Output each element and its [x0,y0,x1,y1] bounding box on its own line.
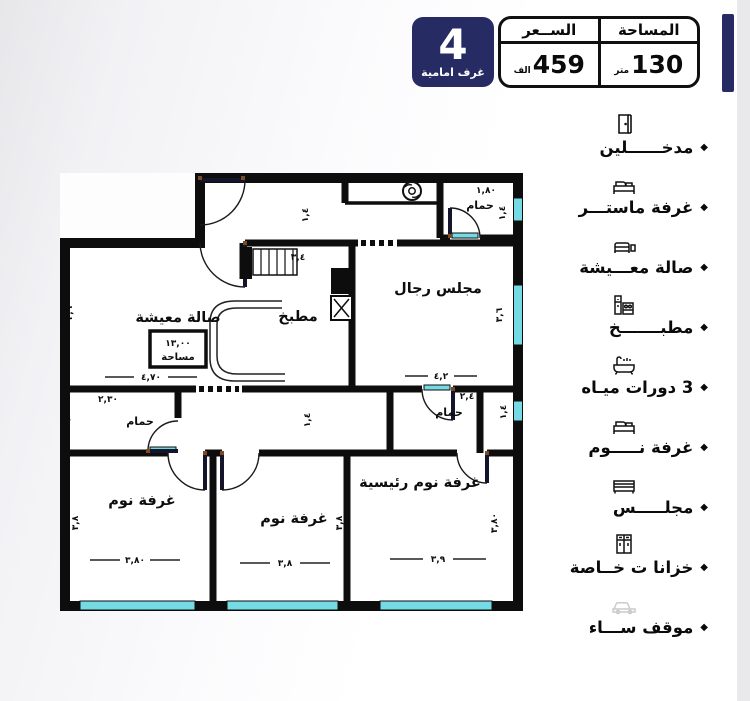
bed-icon [611,170,637,196]
room-kitchen: مطبخ [278,309,317,325]
dim-majlis-height: ٣,٦ [495,307,505,322]
dim-hall-depth: ١,٤ [303,413,313,427]
area-price-table: المساحة 130 متر الســعر 459 الف [498,16,700,88]
price-column: الســعر 459 الف [501,19,601,85]
stove-appliance [331,268,352,320]
dim-kitchen-width: ٣,٤ [291,253,305,263]
dim-entry-depth: ١,٤ [301,208,311,222]
dim-bath-top-width: ١,٨٠ [476,186,496,196]
bullet-icon: ◆ [700,503,708,513]
area-value-cell: 130 متر [601,44,698,85]
room-bedroom-1: غرفة نوم [108,493,175,509]
bed-icon [611,410,637,436]
bullet-icon: ◆ [700,443,708,453]
feature-parking: ◆موقف ســـاء [540,590,708,650]
area-value: 130 [631,50,683,79]
dim-master-width: ٣,٩ [431,555,446,565]
area-box-word: مساحة [161,352,194,363]
rooms-badge: 4 غرف امامية [412,17,494,87]
room-bedroom-2: غرفة نوم [260,511,327,527]
page-edge-strip [737,0,750,701]
door-icon [612,110,636,136]
feature-bathrooms: ◆3 دورات ميـاه [540,350,708,410]
room-living: صالة معيشة [135,310,220,326]
dim-bedroom2-width: ٣,٨ [278,559,293,569]
dim-bath-right-width: ٢,٤ [460,392,474,402]
dim-bath-right-depth: ١,٤ [499,405,509,419]
feature-living-hall: ◆صالة معـــيشة [540,230,708,290]
feature-kitchen: ◆مطبـــــــخ [540,290,708,350]
area-box: ١٣,٠٠ مساحة [150,331,206,367]
bullet-icon: ◆ [700,623,708,633]
features-sidebar: ◆مدخــــــلين ◆غرفة ماستـــر ◆صالة معـــ… [540,110,708,650]
area-unit: متر [614,66,629,76]
bullet-icon: ◆ [700,263,708,273]
dim-master-height: ٣,٨٠ [490,513,500,533]
dim-bedroom2-height: ٣,٨ [335,515,345,530]
rooms-badge-number: 4 [438,25,467,65]
feature-master-room: ◆غرفة ماستـــر [540,170,708,230]
dim-bath-left-depth: ١,٤ [62,412,72,426]
rooms-badge-label: غرف امامية [421,66,485,79]
room-bath-top: حمام [466,199,494,212]
price-unit: الف [514,66,531,76]
sofa-icon [611,230,637,256]
price-value-cell: 459 الف [501,44,598,85]
feature-closets: ◆خزانا ت خــاصة [540,530,708,590]
floor-plan: ١٣,٠٠ مساحة صالة معيشة مطبخ مجلس رجال حم… [50,163,535,631]
majlis-sofa-icon [610,470,638,496]
dim-majlis-width: ٤,٢ [434,372,449,382]
area-header: المساحة [601,19,698,44]
parking-icon [610,590,638,616]
flyer-page: 4 غرف امامية المساحة 130 متر الســعر 459… [0,0,750,701]
dim-bath-left-width: ٢,٣٠ [98,395,118,405]
closet-icon [612,530,636,556]
feature-entrances: ◆مدخــــــلين [540,110,708,170]
dim-living-width: ٤,٧٠ [141,373,161,383]
area-column: المساحة 130 متر [601,19,698,85]
room-master-bedroom: غرفة نوم رئيسية [359,475,481,491]
dim-bedroom1-height: ٣,٨ [71,515,81,530]
bullet-icon: ◆ [700,143,708,153]
bullet-icon: ◆ [700,383,708,393]
price-header: الســعر [501,19,598,44]
bullet-icon: ◆ [700,323,708,333]
bathtub-icon [611,350,637,376]
room-bath-right: حمام [435,406,463,419]
room-bath-left: حمام [126,415,154,428]
kitchen-icon [611,290,637,316]
bullet-icon: ◆ [700,563,708,573]
bullet-icon: ◆ [700,203,708,213]
dim-bedroom1-width: ٣,٨٠ [125,556,145,566]
feature-majlis: ◆مجلـــــس [540,470,708,530]
price-value: 459 [533,50,585,79]
accent-bar [722,14,734,92]
feature-bedroom: ◆غرفة نـــــوم [540,410,708,470]
area-box-value: ١٣,٠٠ [165,339,190,349]
room-majlis: مجلس رجال [394,281,482,297]
dim-living-height: ٣,٦ [65,305,75,320]
dim-bath-top-depth: ١,٤ [498,206,508,220]
